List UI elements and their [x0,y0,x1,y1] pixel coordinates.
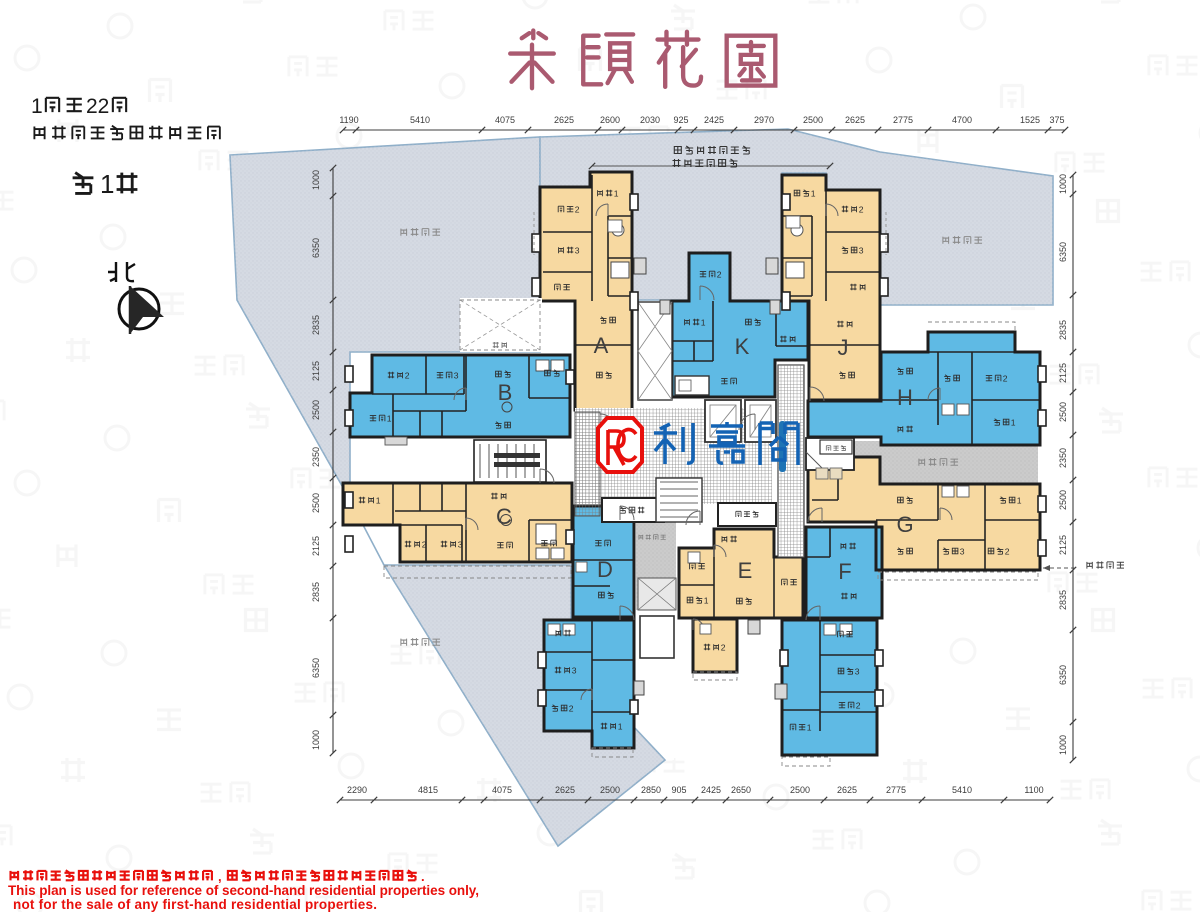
svg-text:J: J [838,335,849,360]
svg-text:2125: 2125 [1058,363,1068,383]
svg-text:1: 1 [811,188,816,198]
svg-text:5410: 5410 [952,785,972,795]
svg-text:2350: 2350 [311,447,321,467]
svg-text:3: 3 [575,245,580,255]
svg-text:2775: 2775 [893,115,913,125]
svg-text:2500: 2500 [600,785,620,795]
svg-text:B: B [498,380,513,405]
svg-text:1525: 1525 [1020,115,1040,125]
svg-text:3: 3 [855,666,860,676]
svg-text:2500: 2500 [1058,402,1068,422]
svg-text:.: . [421,869,425,884]
svg-text:2500: 2500 [1058,490,1068,510]
svg-text:22: 22 [86,95,109,118]
svg-text:2775: 2775 [886,785,906,795]
svg-text:2625: 2625 [837,785,857,795]
svg-text:2625: 2625 [554,115,574,125]
svg-text:1: 1 [387,413,392,423]
svg-text:not for the sale of any first-: not for the sale of any first-hand resid… [13,897,377,912]
svg-text:2835: 2835 [311,582,321,602]
svg-text:1: 1 [1011,417,1016,427]
svg-text:2500: 2500 [790,785,810,795]
svg-text:D: D [597,557,613,582]
svg-text:G: G [896,512,913,537]
svg-text:2: 2 [859,204,864,214]
svg-text:2: 2 [856,700,861,710]
svg-text:1000: 1000 [311,730,321,750]
svg-text:2030: 2030 [640,115,660,125]
svg-text:4815: 4815 [418,785,438,795]
svg-text:2625: 2625 [845,115,865,125]
svg-text:3: 3 [572,665,577,675]
svg-text:2500: 2500 [311,493,321,513]
svg-text:3: 3 [454,370,459,380]
svg-text:2350: 2350 [1058,448,1068,468]
svg-text:905: 905 [671,785,686,795]
svg-text:2: 2 [1005,546,1010,556]
svg-text:H: H [897,385,913,410]
svg-text:3: 3 [859,245,864,255]
svg-text:2125: 2125 [311,536,321,556]
svg-text:1000: 1000 [1058,735,1068,755]
svg-text:2600: 2600 [600,115,620,125]
svg-text:6350: 6350 [311,658,321,678]
svg-text:6350: 6350 [1058,665,1068,685]
svg-text:1: 1 [376,495,381,505]
svg-text:A: A [594,333,609,358]
svg-text:3: 3 [960,546,965,556]
svg-text:C: C [496,504,512,529]
svg-text:2290: 2290 [347,785,367,795]
svg-text:E: E [738,558,753,583]
svg-text:925: 925 [673,115,688,125]
svg-text:6350: 6350 [311,238,321,258]
svg-text:3: 3 [458,539,463,549]
svg-text:2835: 2835 [1058,590,1068,610]
svg-text:5410: 5410 [410,115,430,125]
svg-text:,: , [218,869,222,884]
svg-text:2125: 2125 [311,361,321,381]
svg-text:4075: 4075 [492,785,512,795]
svg-text:F: F [838,559,851,584]
svg-text:2650: 2650 [731,785,751,795]
svg-text:2: 2 [422,539,427,549]
svg-text:2125: 2125 [1058,535,1068,555]
svg-text:2: 2 [575,204,580,214]
svg-text:1: 1 [614,188,619,198]
svg-text:2835: 2835 [1058,320,1068,340]
svg-text:1: 1 [100,169,114,199]
svg-text:K: K [735,334,750,359]
svg-text:2970: 2970 [754,115,774,125]
svg-text:1: 1 [618,721,623,731]
svg-text:4075: 4075 [495,115,515,125]
svg-text:2: 2 [569,703,574,713]
svg-text:2: 2 [717,269,722,279]
svg-text:2835: 2835 [311,315,321,335]
svg-text:1190: 1190 [339,115,358,125]
svg-text:2500: 2500 [803,115,823,125]
svg-text:2: 2 [405,370,410,380]
svg-text:2425: 2425 [704,115,724,125]
svg-text:2500: 2500 [311,400,321,420]
svg-text:2: 2 [1003,373,1008,383]
svg-text:1: 1 [1017,495,1022,505]
svg-text:1: 1 [704,595,709,605]
svg-text:1100: 1100 [1024,785,1043,795]
svg-text:1: 1 [807,722,812,732]
svg-text:1: 1 [701,317,706,327]
svg-text:1000: 1000 [1058,174,1068,194]
svg-text:2: 2 [721,642,726,652]
svg-text:1000: 1000 [311,170,321,190]
svg-text:This plan is used for referenc: This plan is used for reference of secon… [8,883,479,898]
svg-text:1: 1 [31,95,43,118]
svg-text:6350: 6350 [1058,242,1068,262]
svg-text:2425: 2425 [701,785,721,795]
svg-text:375: 375 [1049,115,1064,125]
svg-text:2625: 2625 [555,785,575,795]
svg-text:2850: 2850 [641,785,661,795]
svg-text:4700: 4700 [952,115,972,125]
